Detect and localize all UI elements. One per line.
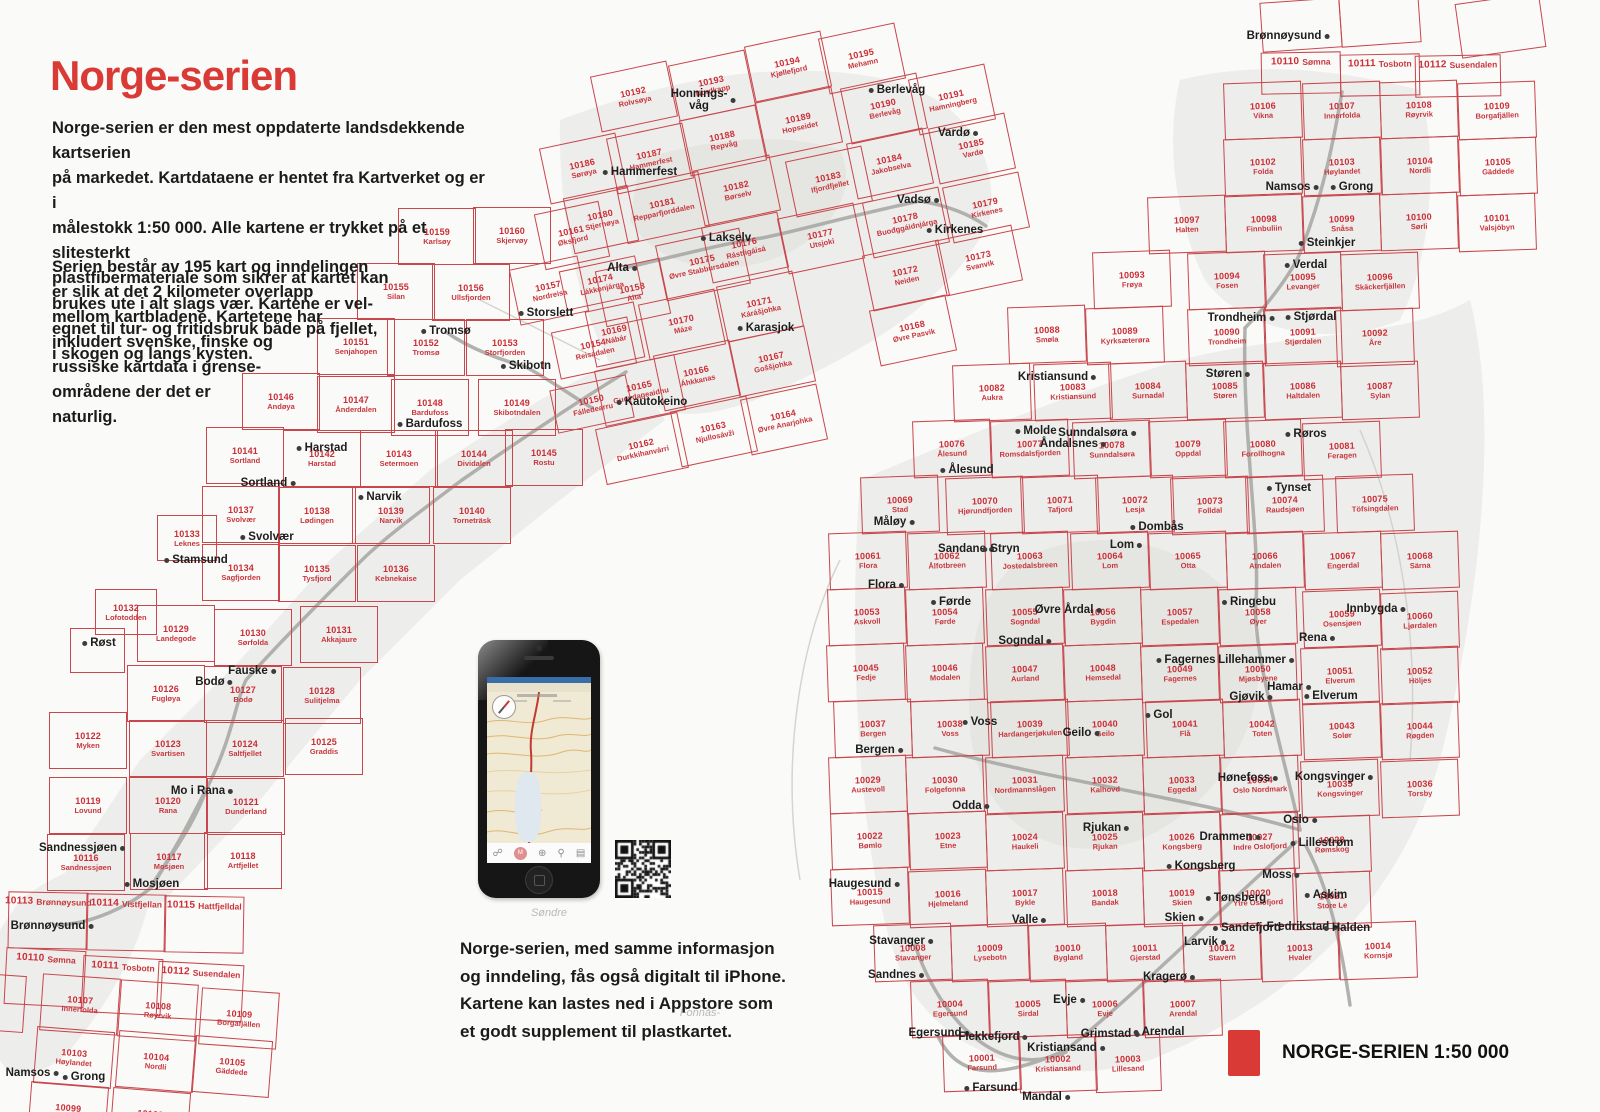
town-label: Grong bbox=[63, 1071, 106, 1083]
town-dot bbox=[985, 804, 990, 809]
town-dot bbox=[271, 669, 276, 674]
town-label: Svolvær bbox=[240, 531, 293, 543]
town-label: Larvik bbox=[1184, 936, 1226, 948]
town-label: Rjukan bbox=[1083, 822, 1129, 834]
town-dot bbox=[919, 973, 924, 978]
town-dot bbox=[1206, 896, 1211, 901]
town-dot bbox=[894, 882, 899, 887]
town-name: Sandane bbox=[938, 543, 986, 555]
town-name: Harstad bbox=[305, 442, 348, 454]
town-name: Gol bbox=[1153, 709, 1172, 721]
town-name: Steinkjer bbox=[1307, 237, 1356, 249]
phone-home-button bbox=[525, 866, 553, 894]
town-name: Evje bbox=[1053, 994, 1077, 1006]
town-name: Flekkefjord bbox=[958, 1031, 1019, 1043]
town-label: Flora bbox=[868, 579, 904, 591]
town-name: Valle bbox=[1012, 914, 1038, 926]
town-name: Åndalsnes bbox=[1040, 438, 1098, 450]
town-dot bbox=[63, 1075, 68, 1080]
town-label: Skibotn bbox=[501, 360, 551, 372]
town-dot bbox=[1267, 486, 1272, 491]
town-name: Odda bbox=[952, 800, 981, 812]
town-name: Sortland bbox=[241, 477, 288, 489]
town-label: Tønsberg bbox=[1206, 892, 1266, 904]
town-dot bbox=[1080, 998, 1085, 1003]
town-dot bbox=[1137, 543, 1142, 548]
town-label: Haugesund bbox=[829, 878, 900, 890]
town-label: Lakselv bbox=[701, 232, 751, 244]
town-label: Geilo bbox=[1063, 727, 1100, 739]
town-name: Kirkenes bbox=[935, 224, 984, 236]
town-label: Elverum bbox=[1304, 690, 1357, 702]
town-label: Fauske bbox=[228, 665, 276, 677]
town-label: Gol bbox=[1145, 709, 1172, 721]
town-name: Bodø bbox=[195, 676, 224, 688]
town-label: Støren bbox=[1206, 368, 1250, 380]
town-dot bbox=[940, 468, 945, 473]
town-name: Brønnøysund bbox=[1247, 30, 1322, 42]
phone-toolbar: ☍ M ⊕ ⚲ ▤ bbox=[487, 843, 591, 863]
town-name: Skibotn bbox=[509, 360, 551, 372]
town-name: Hammerfest bbox=[611, 166, 677, 178]
town-label: Kristiansund bbox=[1018, 371, 1096, 383]
town-dot bbox=[1198, 916, 1203, 921]
town-label: Voss bbox=[963, 716, 998, 728]
town-name: Ålesund bbox=[948, 464, 993, 476]
town-name: Stamsund bbox=[172, 554, 228, 566]
town-name: Stryn bbox=[990, 543, 1019, 555]
town-dot bbox=[931, 600, 936, 605]
town-name: Mosjøen bbox=[133, 878, 180, 890]
town-dot bbox=[82, 641, 87, 646]
town-label: Arendal bbox=[1134, 1026, 1185, 1038]
town-dot bbox=[909, 520, 914, 525]
town-dot bbox=[1313, 185, 1318, 190]
town-dot bbox=[869, 88, 874, 93]
town-name: Namsos bbox=[1266, 181, 1311, 193]
town-label: Alta bbox=[607, 262, 637, 274]
town-label: Flekkefjord bbox=[958, 1031, 1027, 1043]
town-dot bbox=[1286, 315, 1291, 320]
town-label: Oslo bbox=[1283, 814, 1317, 826]
town-dot bbox=[963, 720, 968, 725]
intro-paragraph-2: Serien består av 195 kart og inndelingen… bbox=[52, 255, 492, 431]
town-dot bbox=[1047, 639, 1052, 644]
town-dot bbox=[358, 495, 363, 500]
page-title: Norge-serien bbox=[50, 52, 297, 100]
town-dot bbox=[1222, 600, 1227, 605]
town-dot bbox=[1094, 731, 1099, 736]
town-label: Kirkenes bbox=[927, 224, 984, 236]
town-dot bbox=[632, 266, 637, 271]
town-label: Lillehammer bbox=[1218, 654, 1294, 666]
town-name: Berlevåg bbox=[877, 84, 926, 96]
town-dot bbox=[738, 326, 743, 331]
town-name: Halden bbox=[1332, 922, 1370, 934]
faint-map-label: Søndre bbox=[531, 907, 567, 919]
town-label: Askim bbox=[1305, 889, 1348, 901]
town-name: Grong bbox=[71, 1071, 106, 1083]
town-label: Røros bbox=[1285, 428, 1326, 440]
town-dot bbox=[928, 939, 933, 944]
town-dot bbox=[125, 882, 130, 887]
position-button: M bbox=[514, 847, 527, 860]
town-dot bbox=[501, 364, 506, 369]
town-name: Karasjok bbox=[746, 322, 795, 334]
town-dot bbox=[1100, 1046, 1105, 1051]
town-dot bbox=[973, 131, 978, 136]
town-dot bbox=[701, 236, 706, 241]
town-label: Odda bbox=[952, 800, 989, 812]
town-label: Karasjok bbox=[738, 322, 795, 334]
town-name: Vadsø bbox=[897, 194, 931, 206]
town-label: Røst bbox=[82, 637, 116, 649]
town-label: Kragerø bbox=[1143, 971, 1195, 983]
town-dot bbox=[1065, 1095, 1070, 1100]
town-label: Drammen bbox=[1199, 831, 1260, 843]
town-dot bbox=[927, 228, 932, 233]
town-label: Berlevåg bbox=[869, 84, 926, 96]
town-name: Arendal bbox=[1142, 1026, 1185, 1038]
town-dot bbox=[1213, 926, 1218, 931]
town-dot bbox=[1304, 694, 1309, 699]
town-dot bbox=[617, 400, 622, 405]
town-label: Lillestrøm bbox=[1291, 837, 1354, 849]
town-label: Rena bbox=[1299, 632, 1335, 644]
town-name: Sandnessjøen bbox=[39, 842, 117, 854]
town-dot bbox=[1368, 775, 1373, 780]
phone-camera-dot bbox=[536, 645, 542, 651]
town-name: Lillestrøm bbox=[1299, 837, 1354, 849]
town-dot bbox=[1269, 316, 1274, 321]
town-name: Gjøvik bbox=[1229, 691, 1264, 703]
town-label: Grong bbox=[1331, 181, 1374, 193]
town-name: Askim bbox=[1313, 889, 1348, 901]
town-name: Flora bbox=[868, 579, 896, 591]
town-dot bbox=[899, 583, 904, 588]
town-name: Støren bbox=[1206, 368, 1242, 380]
town-label: Innbygda bbox=[1346, 603, 1405, 615]
town-label: Stryn bbox=[982, 543, 1019, 555]
town-label: Namsos bbox=[6, 1067, 59, 1079]
town-label: Måløy bbox=[874, 516, 915, 528]
town-dot bbox=[290, 481, 295, 486]
town-dot bbox=[1401, 607, 1406, 612]
town-dot bbox=[53, 1071, 58, 1076]
town-name: Fredrikstad bbox=[1267, 921, 1330, 933]
town-dot bbox=[1324, 34, 1329, 39]
town-label: Ålesund bbox=[940, 464, 993, 476]
town-name: Lom bbox=[1110, 539, 1134, 551]
town-dot bbox=[1312, 818, 1317, 823]
town-dot bbox=[519, 311, 524, 316]
compass-rose bbox=[492, 695, 516, 719]
town-dot bbox=[228, 789, 233, 794]
town-name: Drammen bbox=[1199, 831, 1252, 843]
town-label: Bodø bbox=[195, 676, 232, 688]
town-dot bbox=[1268, 695, 1273, 700]
town-name: Fauske bbox=[228, 665, 268, 677]
town-dot bbox=[1091, 375, 1096, 380]
town-name: Haugesund bbox=[829, 878, 892, 890]
town-name: Grong bbox=[1339, 181, 1374, 193]
town-name: Ringebu bbox=[1230, 596, 1276, 608]
town-dot bbox=[1285, 432, 1290, 437]
town-name: Mo i Rana bbox=[171, 785, 225, 797]
town-name: Kongsvinger bbox=[1295, 771, 1365, 783]
town-dot bbox=[164, 558, 169, 563]
town-name: Vardø bbox=[938, 127, 970, 139]
town-dot bbox=[730, 98, 735, 103]
town-dot bbox=[1299, 241, 1304, 246]
town-name: Voss bbox=[971, 716, 998, 728]
town-name: Øvre Årdal bbox=[1035, 604, 1094, 616]
town-name: Rjukan bbox=[1083, 822, 1121, 834]
town-label: Evje bbox=[1053, 994, 1085, 1006]
town-name: Innbygda bbox=[1346, 603, 1397, 615]
town-label: Molde bbox=[1015, 425, 1056, 437]
phone-appbar bbox=[487, 683, 591, 692]
town-dot bbox=[1156, 658, 1161, 663]
town-name: Skien bbox=[1165, 912, 1196, 924]
town-name: Trondheim bbox=[1208, 312, 1267, 324]
town-name: Molde bbox=[1023, 425, 1056, 437]
town-name: Verdal bbox=[1293, 259, 1328, 271]
town-label: Lom bbox=[1110, 539, 1142, 551]
town-label: Kongsberg bbox=[1167, 860, 1236, 872]
town-dot bbox=[1190, 975, 1195, 980]
iphone-caption: Norge-serien, med samme informasjon og i… bbox=[460, 935, 880, 1045]
town-name: Oslo bbox=[1283, 814, 1309, 826]
clip-icon: ☍ bbox=[493, 848, 503, 859]
town-label: Harstad bbox=[297, 442, 348, 454]
town-label: Honnings- våg bbox=[671, 88, 736, 112]
town-name: Geilo bbox=[1063, 727, 1092, 739]
town-name: Brønnøysund bbox=[11, 920, 86, 932]
town-label: Vardø bbox=[938, 127, 978, 139]
search-icon: ⚲ bbox=[557, 848, 564, 859]
town-dot bbox=[898, 748, 903, 753]
town-dot bbox=[240, 535, 245, 540]
town-label: Øvre Årdal bbox=[1035, 604, 1102, 616]
town-name: Namsos bbox=[6, 1067, 51, 1079]
footer-red-block bbox=[1228, 1030, 1260, 1076]
layers-icon: ▤ bbox=[576, 848, 585, 859]
town-label: Steinkjer bbox=[1299, 237, 1356, 249]
town-dot bbox=[1131, 431, 1136, 436]
town-name: Sogndal bbox=[998, 635, 1043, 647]
town-name: Hamar bbox=[1267, 681, 1303, 693]
town-label: Åndalsnes bbox=[1040, 438, 1106, 450]
town-dot bbox=[1291, 841, 1296, 846]
town-dot bbox=[1096, 608, 1101, 613]
town-label: Tynset bbox=[1267, 482, 1311, 494]
town-name: Farsund bbox=[972, 1082, 1017, 1094]
town-name: Hønefoss bbox=[1218, 772, 1270, 784]
town-dot bbox=[964, 1086, 969, 1091]
town-label: Gjøvik bbox=[1229, 691, 1272, 703]
town-label: Kautokeino bbox=[617, 396, 688, 408]
town-name: Svolvær bbox=[248, 531, 293, 543]
town-label: Mo i Rana bbox=[171, 785, 233, 797]
town-dot bbox=[1285, 263, 1290, 268]
town-label: Hammerfest bbox=[603, 166, 677, 178]
town-name: Bergen bbox=[855, 744, 895, 756]
town-label: Brønnøysund bbox=[1247, 30, 1330, 42]
qr-code bbox=[615, 840, 671, 898]
town-name: Fagernes bbox=[1164, 654, 1215, 666]
town-dot bbox=[1256, 835, 1261, 840]
town-label: Sogndal bbox=[998, 635, 1051, 647]
town-dot bbox=[934, 198, 939, 203]
town-dot bbox=[1041, 918, 1046, 923]
town-dot bbox=[1023, 1035, 1028, 1040]
town-dot bbox=[1324, 926, 1329, 931]
footer-series-label: NORGE-SERIEN 1:50 000 bbox=[1282, 1042, 1509, 1064]
town-dot bbox=[1295, 873, 1300, 878]
town-name: Stjørdal bbox=[1294, 311, 1337, 323]
town-label: Stjørdal bbox=[1286, 311, 1337, 323]
town-dot bbox=[297, 446, 302, 451]
phone-speaker bbox=[524, 656, 554, 660]
town-label: Sandnessjøen bbox=[39, 842, 125, 854]
town-label: Vadsø bbox=[897, 194, 939, 206]
town-name: Kristiansund bbox=[1018, 371, 1088, 383]
town-dot bbox=[982, 547, 987, 552]
town-dot bbox=[1130, 525, 1135, 530]
town-dot bbox=[1134, 1030, 1139, 1035]
town-label: Brønnøysund bbox=[11, 920, 94, 932]
town-dot bbox=[1015, 429, 1020, 434]
town-label: Grimstad bbox=[1081, 1028, 1140, 1040]
town-name: Røst bbox=[90, 637, 116, 649]
town-name: Mandal bbox=[1022, 1091, 1062, 1103]
town-dot bbox=[603, 170, 608, 175]
town-name: Egersund bbox=[908, 1027, 961, 1039]
town-name: Storslett bbox=[527, 307, 574, 319]
town-name: Tønsberg bbox=[1214, 892, 1266, 904]
town-label: Dombås bbox=[1130, 521, 1183, 533]
town-label: Farsund bbox=[964, 1082, 1017, 1094]
iphone-image: ☍ M ⊕ ⚲ ▤ bbox=[478, 640, 600, 898]
town-dot bbox=[1221, 940, 1226, 945]
town-dot bbox=[1124, 826, 1129, 831]
town-name: Honnings- våg bbox=[671, 88, 728, 112]
town-name: Larvik bbox=[1184, 936, 1218, 948]
town-label: Verdal bbox=[1285, 259, 1328, 271]
town-name: Lillehammer bbox=[1218, 654, 1286, 666]
phone-screen-map: ☍ M ⊕ ⚲ ▤ bbox=[487, 677, 591, 863]
town-dot bbox=[228, 680, 233, 685]
town-dot bbox=[1330, 636, 1335, 641]
town-dot bbox=[1145, 713, 1150, 718]
town-dot bbox=[1306, 685, 1311, 690]
town-dot bbox=[1305, 893, 1310, 898]
town-label: Moss bbox=[1262, 869, 1299, 881]
town-name: Moss bbox=[1262, 869, 1291, 881]
town-dot bbox=[1331, 185, 1336, 190]
town-name: Kongsberg bbox=[1175, 860, 1236, 872]
town-name: Narvik bbox=[366, 491, 401, 503]
town-dot bbox=[1245, 372, 1250, 377]
town-label: Bergen bbox=[855, 744, 903, 756]
town-label: Hønefoss bbox=[1218, 772, 1278, 784]
town-dot bbox=[1273, 776, 1278, 781]
town-name: Lakselv bbox=[709, 232, 751, 244]
town-label: Førde bbox=[931, 596, 971, 608]
town-label: Kongsvinger bbox=[1295, 771, 1373, 783]
town-name: Kristiansand bbox=[1027, 1042, 1097, 1054]
town-label: Trondheim bbox=[1208, 312, 1275, 324]
town-dot bbox=[1101, 442, 1106, 447]
town-label: Sortland bbox=[241, 477, 296, 489]
town-dot bbox=[120, 846, 125, 851]
town-label: Valle bbox=[1012, 914, 1046, 926]
town-name: Rena bbox=[1299, 632, 1327, 644]
town-name: Dombås bbox=[1138, 521, 1183, 533]
town-label: Storslett bbox=[519, 307, 574, 319]
brochure-page: Norge-serien Norge-serien er den mest op… bbox=[0, 0, 1600, 1112]
town-label: Mandal bbox=[1022, 1091, 1070, 1103]
town-name: Tynset bbox=[1275, 482, 1311, 494]
town-dot bbox=[1289, 658, 1294, 663]
town-name: Kautokeino bbox=[625, 396, 688, 408]
town-label: Stamsund bbox=[164, 554, 228, 566]
town-name: Elverum bbox=[1312, 690, 1357, 702]
town-label: Ringebu bbox=[1222, 596, 1276, 608]
town-name: Måløy bbox=[874, 516, 907, 528]
town-label: Mosjøen bbox=[125, 878, 180, 890]
town-label: Skien bbox=[1165, 912, 1204, 924]
town-name: Røros bbox=[1293, 428, 1326, 440]
lake-shape bbox=[515, 772, 541, 842]
town-dot bbox=[1167, 864, 1172, 869]
town-label: Narvik bbox=[358, 491, 401, 503]
town-label: Halden bbox=[1324, 922, 1370, 934]
town-label: Fagernes bbox=[1156, 654, 1215, 666]
town-label: Kristiansand bbox=[1027, 1042, 1105, 1054]
town-label: Namsos bbox=[1266, 181, 1319, 193]
add-icon: ⊕ bbox=[538, 848, 546, 859]
town-dot bbox=[88, 924, 93, 929]
town-name: Alta bbox=[607, 262, 629, 274]
town-name: Grimstad bbox=[1081, 1028, 1132, 1040]
town-name: Kragerø bbox=[1143, 971, 1187, 983]
town-name: Førde bbox=[939, 596, 971, 608]
